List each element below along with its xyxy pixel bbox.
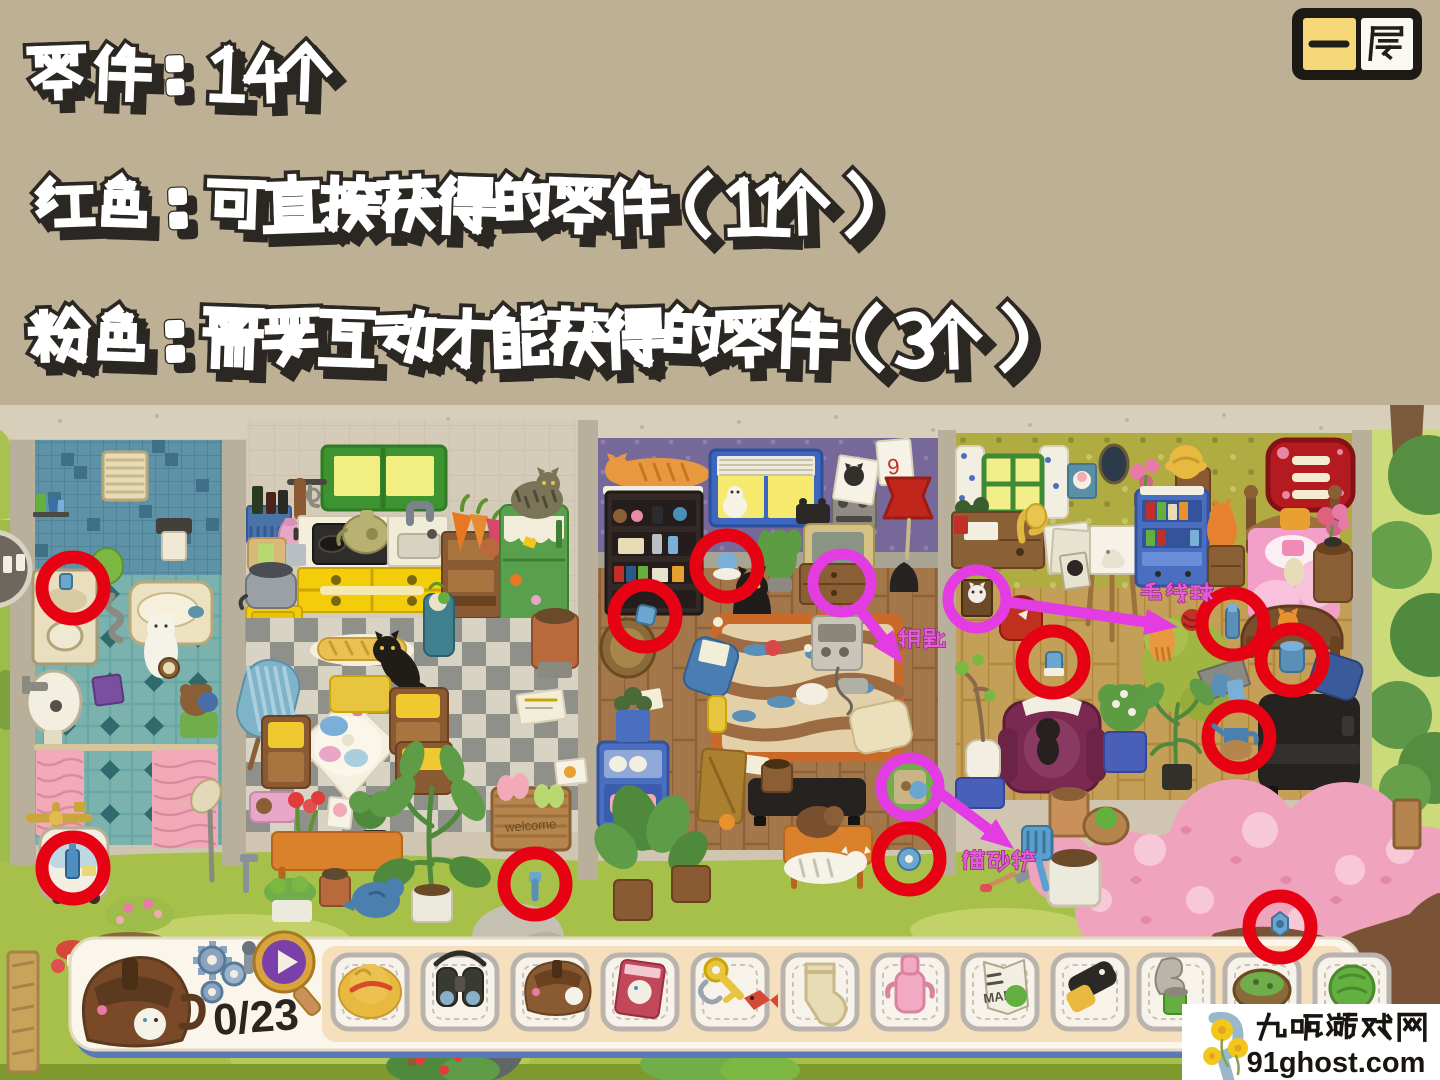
- svg-text:91ghost.com: 91ghost.com: [1247, 1047, 1426, 1079]
- svg-text:9: 9: [886, 454, 900, 480]
- svg-text:0/23: 0/23: [212, 990, 301, 1045]
